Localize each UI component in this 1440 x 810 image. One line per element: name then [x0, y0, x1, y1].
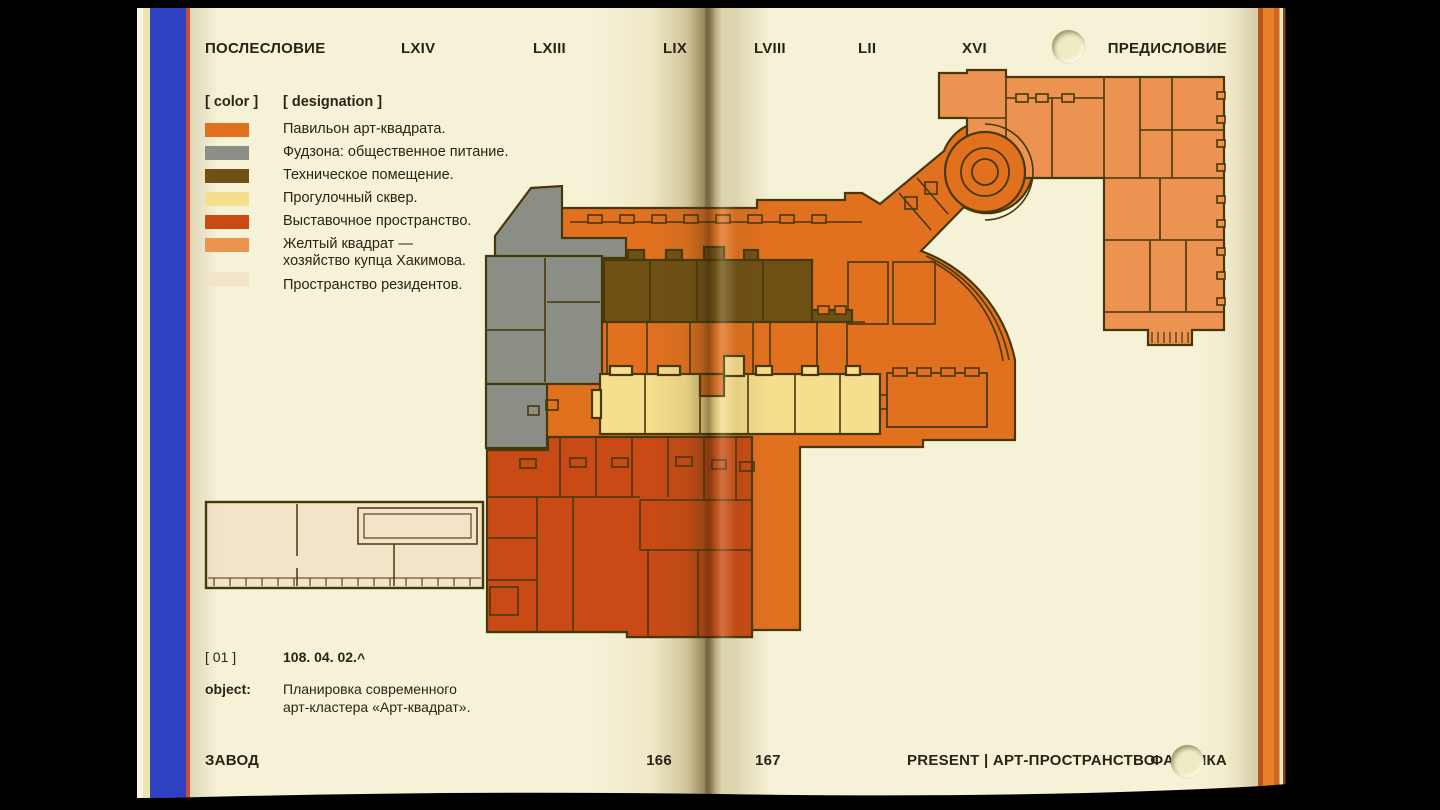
- page-number-left: 166: [640, 752, 672, 769]
- legend-label-technical: Техническое помещение.: [283, 167, 454, 184]
- caption-caret: ^: [357, 649, 365, 667]
- header-afterword: ПОСЛЕСЛОВИЕ: [205, 40, 325, 57]
- header-roman-xvi: XVI: [962, 40, 987, 57]
- right-page: [705, 8, 1258, 798]
- header-roman-lii: LII: [858, 40, 876, 57]
- header-roman-lviii: LVIII: [754, 40, 786, 57]
- header-roman-lxiii: LXIII: [533, 40, 566, 57]
- legend-label-exhibition: Выставочное пространство.: [283, 213, 471, 230]
- legend-swatch-technical: [205, 169, 249, 183]
- spine-stripe-cream: [143, 8, 150, 798]
- legend-label-pavilion: Павильон арт-квадрата.: [283, 121, 445, 138]
- caption-index: [ 01 ]: [205, 648, 236, 666]
- legend-label-yellow-square: Желтый квадрат — хозяйство купца Хакимов…: [283, 236, 466, 270]
- punch-hole-bottom: [1171, 745, 1204, 778]
- spine-stripe-blue: [150, 8, 186, 798]
- legend-swatch-residents: [205, 272, 249, 286]
- legend-swatch-exhibition: [205, 215, 249, 229]
- legend-label-foodzone: Фудзона: общественное питание.: [283, 144, 509, 161]
- legend-label-residents: Пространство резидентов.: [283, 277, 462, 294]
- legend-swatch-park: [205, 192, 249, 206]
- header-preface: ПРЕДИСЛОВИЕ: [1108, 40, 1227, 57]
- legend-swatch-yellow-square: [205, 238, 249, 252]
- legend-swatch-pavilion: [205, 123, 249, 137]
- legend-color-header: [ color ]: [205, 94, 258, 110]
- page-number-right: 167: [755, 752, 781, 769]
- header-roman-lix: LIX: [663, 40, 687, 57]
- legend-label-park: Прогулочный сквер.: [283, 190, 418, 207]
- header-roman-lxiv: LXIV: [401, 40, 435, 57]
- caption-object-label: object:: [205, 680, 251, 698]
- footer-zavod: ЗАВОД: [205, 752, 259, 769]
- footer-present-label: PRESENT | АРТ-ПРОСТРАНСТВО: [907, 752, 1156, 769]
- page-edge-stripes: [1258, 8, 1294, 798]
- legend-designation-header: [ designation ]: [283, 94, 382, 110]
- punch-hole-top: [1052, 30, 1085, 63]
- legend-swatch-foodzone: [205, 146, 249, 160]
- caption-code: 108. 04. 02.: [283, 648, 357, 666]
- caption-object-text: Планировка современного арт-кластера «Ар…: [283, 680, 470, 716]
